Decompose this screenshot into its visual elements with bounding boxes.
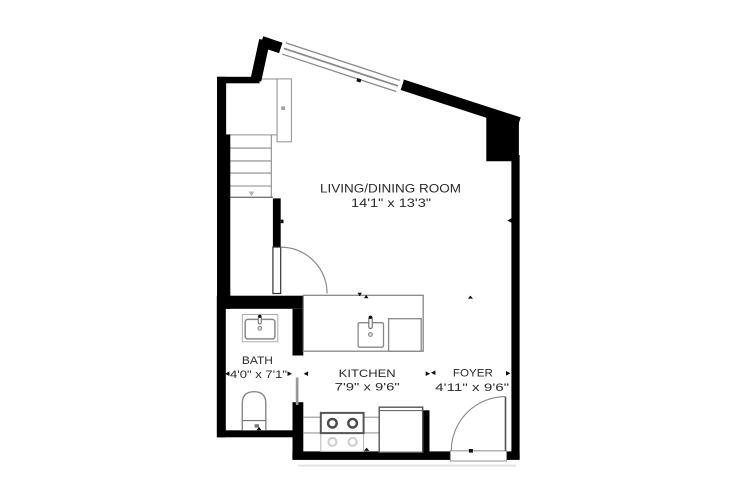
svg-text:4'0" x 7'1": 4'0" x 7'1" bbox=[230, 369, 287, 381]
svg-text:4'11" x 9'6": 4'11" x 9'6" bbox=[435, 382, 509, 394]
svg-text:14'1" x 13'3": 14'1" x 13'3" bbox=[351, 196, 431, 210]
svg-text:7'9" x 9'6": 7'9" x 9'6" bbox=[335, 381, 400, 393]
svg-text:BATH: BATH bbox=[242, 355, 273, 367]
svg-text:FOYER: FOYER bbox=[453, 368, 493, 380]
svg-text:KITCHEN: KITCHEN bbox=[339, 368, 396, 380]
svg-text:LIVING/DINING ROOM: LIVING/DINING ROOM bbox=[320, 182, 461, 196]
